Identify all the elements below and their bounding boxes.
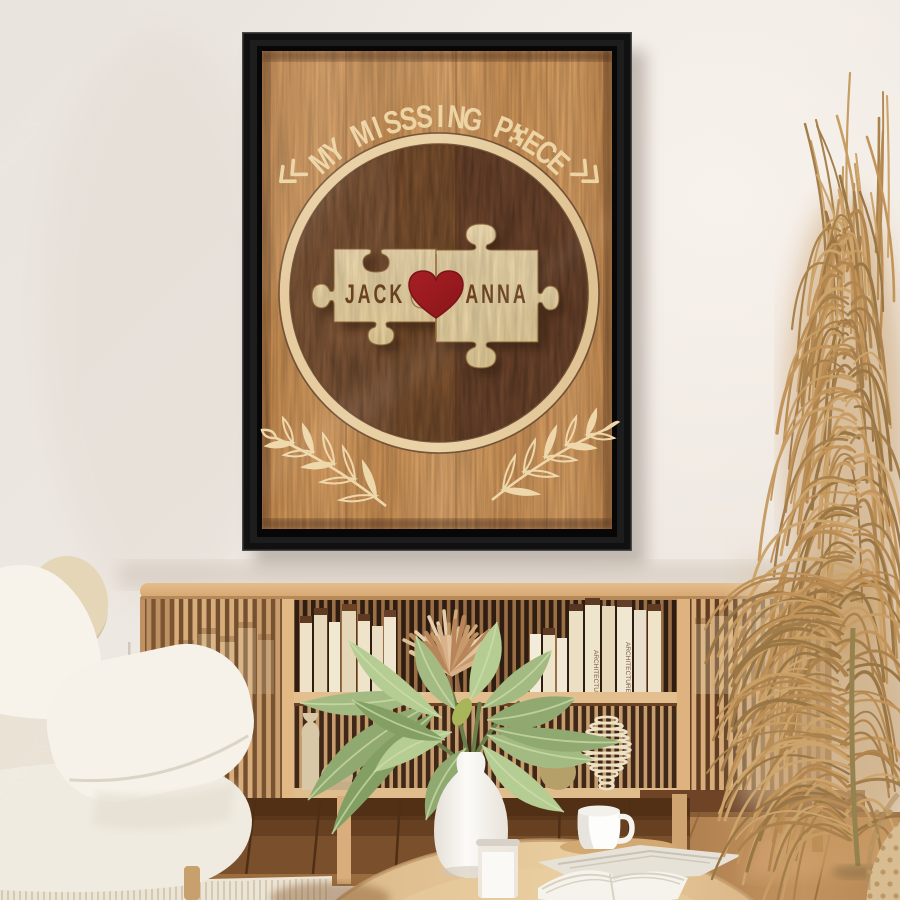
svg-text:S: S (415, 99, 435, 136)
svg-text:JACK: JACK (345, 278, 405, 309)
svg-text:I: I (437, 99, 444, 135)
svg-text:ARCHITECTURE: ARCHITECTURE (624, 642, 631, 694)
